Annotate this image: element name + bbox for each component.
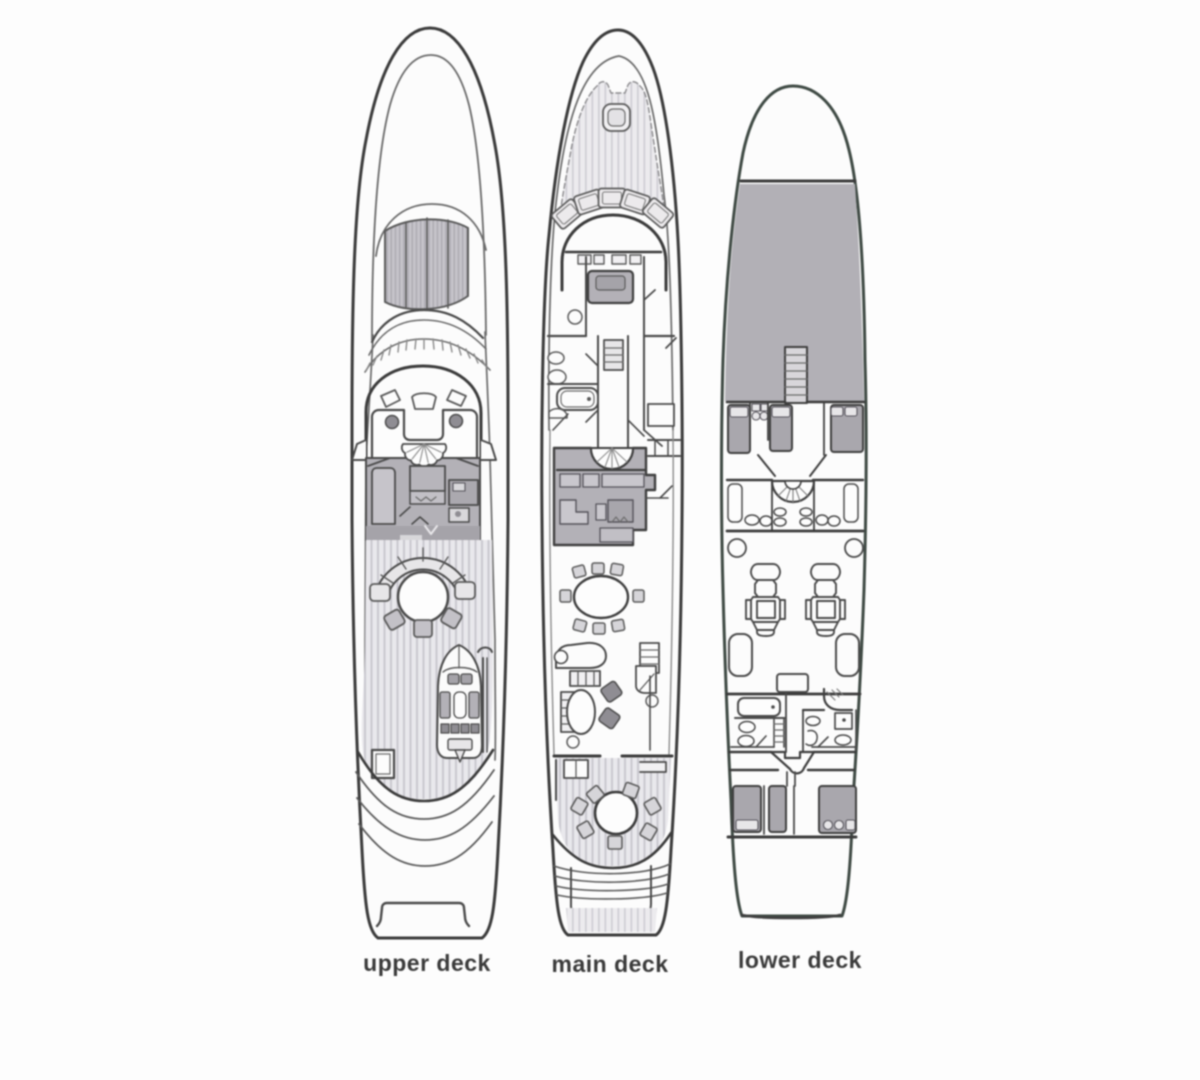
svg-text:main deck: main deck bbox=[552, 951, 669, 977]
svg-text:upper deck: upper deck bbox=[363, 950, 491, 976]
svg-text:lower deck: lower deck bbox=[738, 947, 862, 973]
